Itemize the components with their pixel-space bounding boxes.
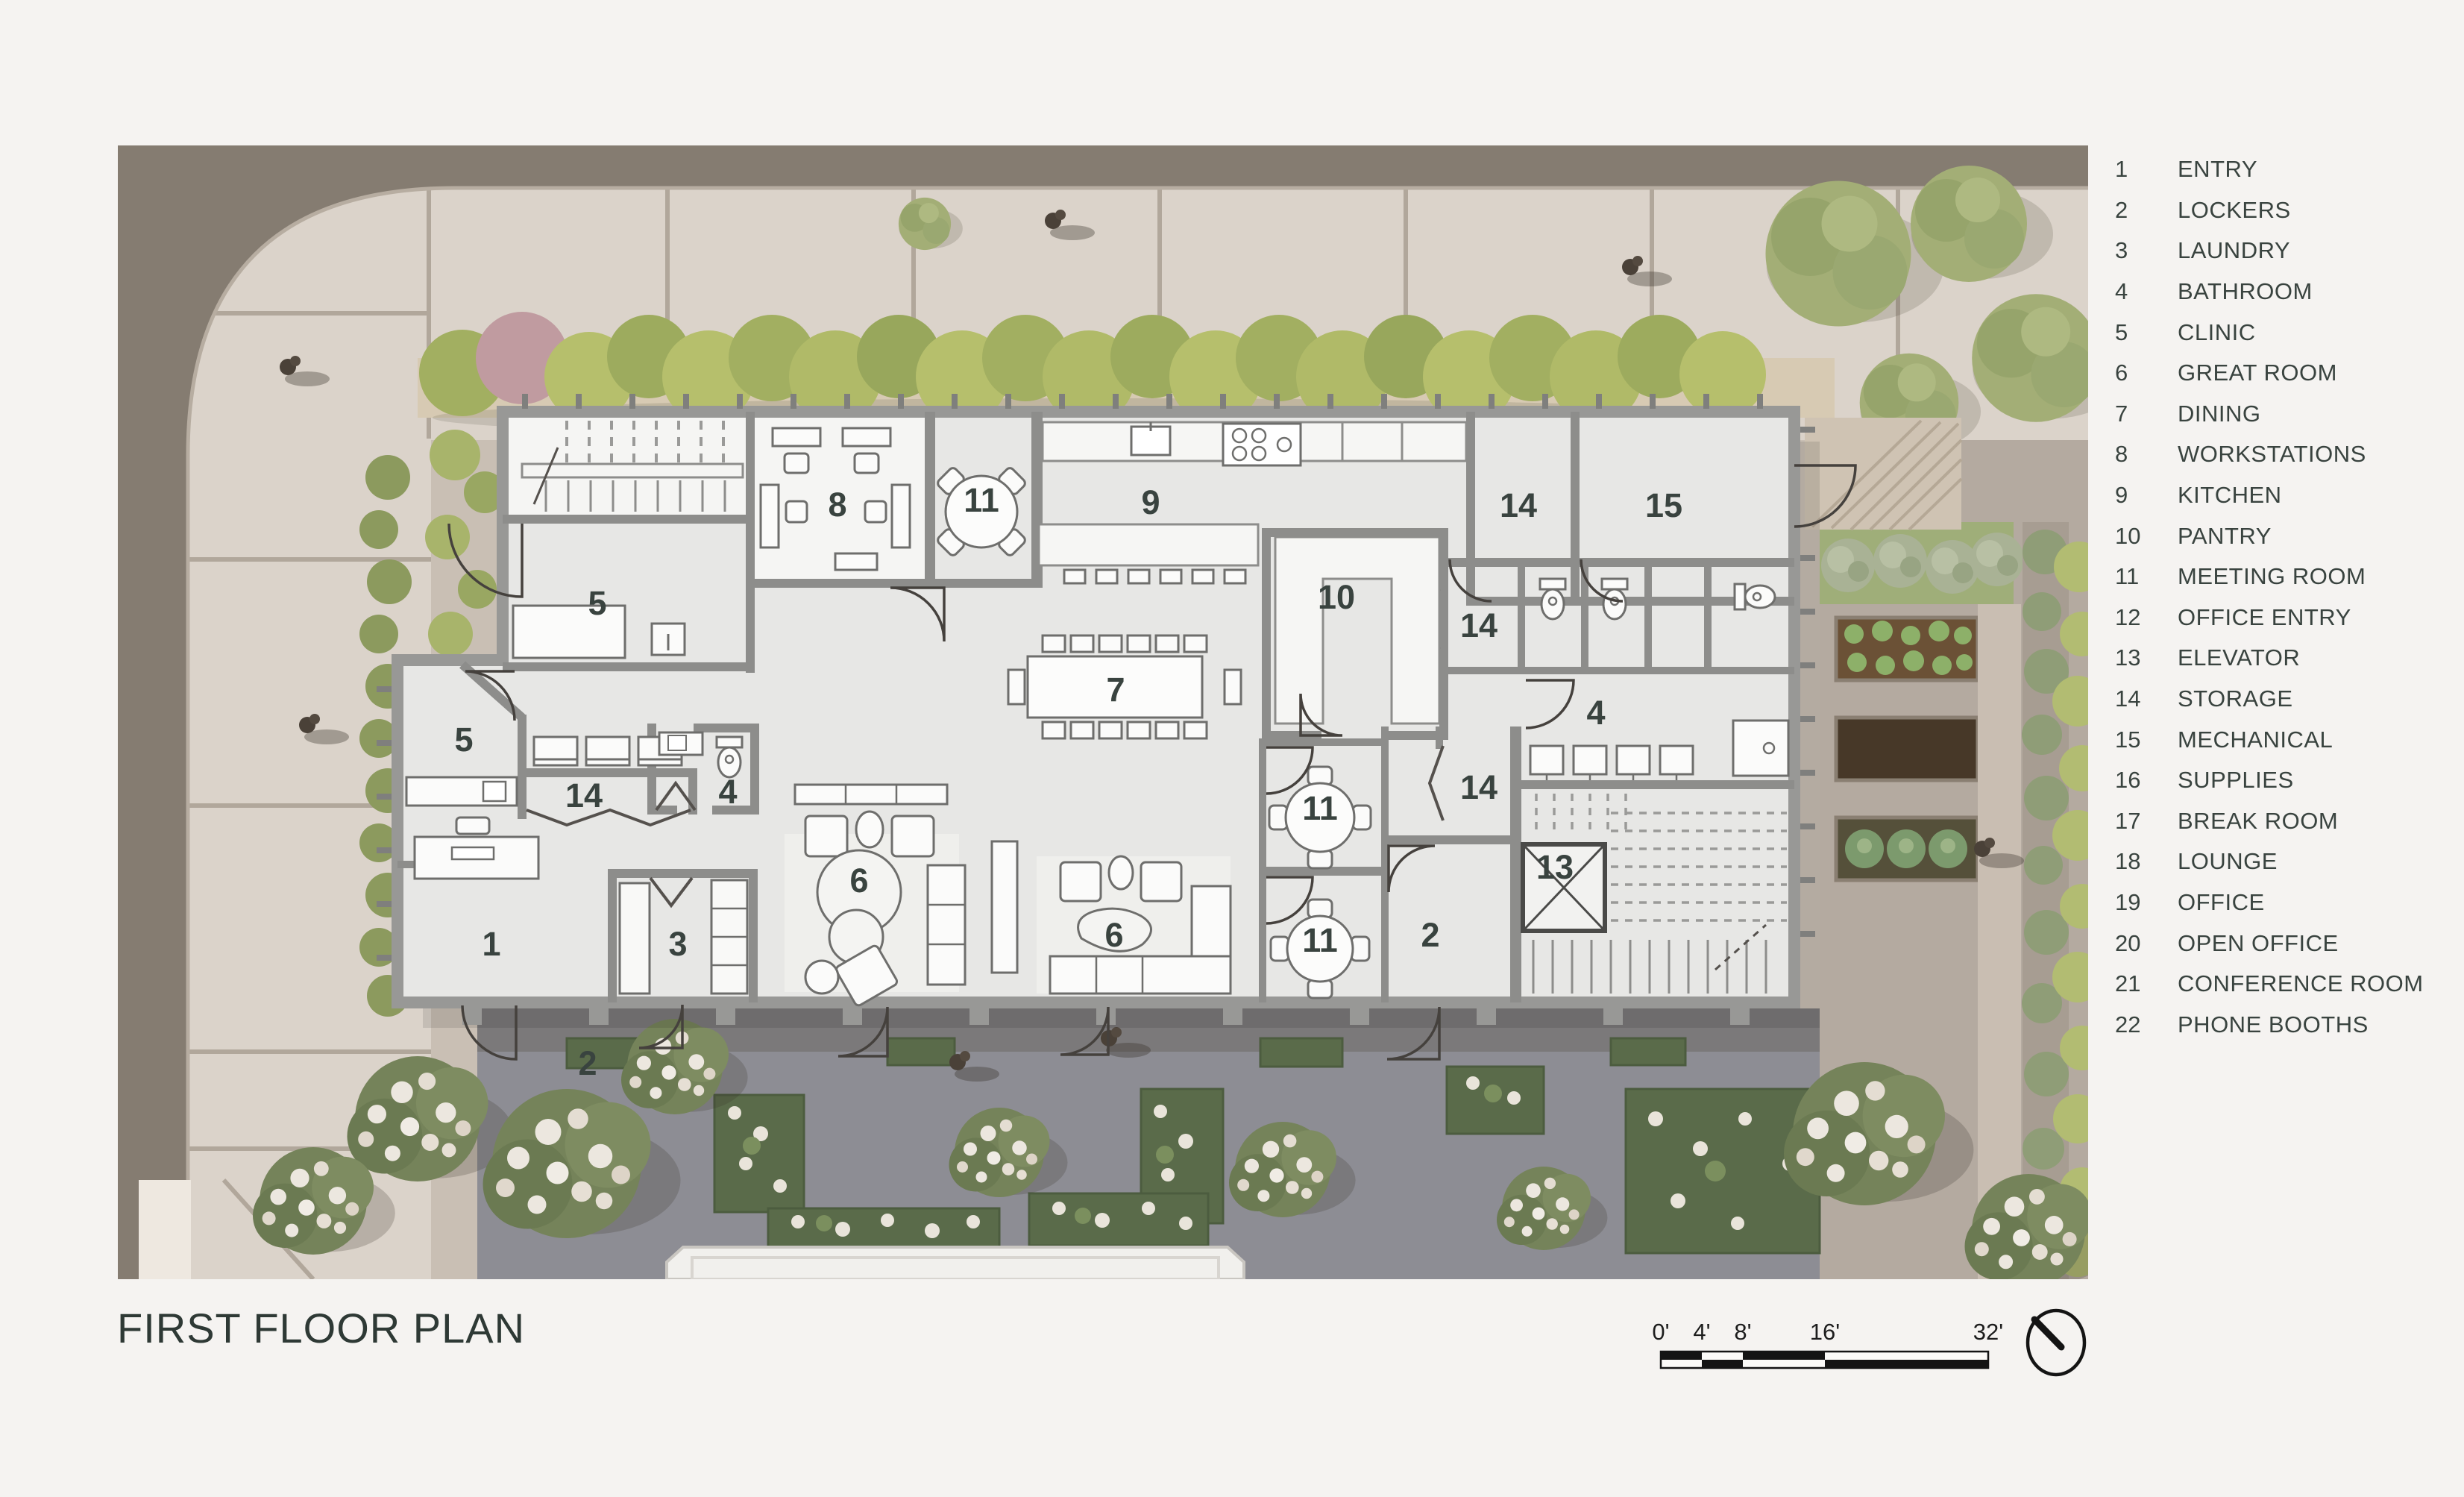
floor-plan-sheet: 811914155101474514461114613131122 0'4'8'… [0, 0, 2464, 1497]
legend-item-15: 15MECHANICAL [2115, 719, 2458, 760]
legend-item-number: 6 [2115, 360, 2178, 386]
room-label-14-7: 14 [1460, 606, 1497, 644]
legend-item-label: KITCHEN [2178, 482, 2458, 509]
legend-item-17: 17BREAK ROOM [2115, 801, 2458, 842]
room-label-6-13: 6 [849, 862, 868, 900]
legend-item-11: 11MEETING ROOM [2115, 556, 2458, 597]
legend-item-label: ENTRY [2178, 156, 2458, 183]
legend-item-label: OFFICE [2178, 889, 2458, 916]
legend-item-label: PANTRY [2178, 523, 2458, 550]
legend-item-label: BREAK ROOM [2178, 808, 2458, 835]
room-label-15-4: 15 [1645, 486, 1682, 524]
legend-item-label: MEETING ROOM [2178, 563, 2458, 590]
room-label-14-15: 14 [1460, 768, 1497, 806]
room-label-4-12: 4 [718, 773, 737, 811]
scale-tick-32': 32' [1973, 1319, 2003, 1345]
legend-item-number: 14 [2115, 685, 2178, 712]
legend-item-9: 9KITCHEN [2115, 475, 2458, 516]
legend-item-number: 22 [2115, 1011, 2178, 1038]
room-label-8-0: 8 [828, 486, 846, 524]
legend-item-16: 16SUPPLIES [2115, 760, 2458, 801]
site-plan-canvas: 811914155101474514461114613131122 0'4'8'… [0, 0, 2464, 1497]
scale-tick-8': 8' [1734, 1319, 1751, 1345]
legend-item-label: ELEVATOR [2178, 644, 2458, 671]
legend-item-10: 10PANTRY [2115, 515, 2458, 556]
page-title: FIRST FLOOR PLAN [117, 1304, 525, 1352]
legend-item-label: WORKSTATIONS [2178, 441, 2458, 468]
legend-item-number: 9 [2115, 482, 2178, 509]
legend-item-number: 21 [2115, 970, 2178, 997]
legend-item-label: LAUNDRY [2178, 237, 2458, 264]
legend-item-18: 18LOUNGE [2115, 841, 2458, 882]
room-label-9-2: 9 [1141, 483, 1160, 521]
legend-item-number: 8 [2115, 441, 2178, 468]
legend-item-number: 18 [2115, 848, 2178, 875]
legend-item-14: 14STORAGE [2115, 679, 2458, 720]
room-label-11-1: 11 [964, 481, 999, 519]
room-label-5-5: 5 [588, 584, 606, 622]
legend-item-8: 8WORKSTATIONS [2115, 434, 2458, 475]
legend-item-label: PHONE BOOTHS [2178, 1011, 2458, 1038]
scale-tick-0': 0' [1652, 1319, 1669, 1345]
legend-item-label: MECHANICAL [2178, 726, 2458, 753]
scale-bar-labels: 0'4'8'16'32' [1652, 1319, 2003, 1345]
scale-tick-4': 4' [1693, 1319, 1710, 1345]
driveway-strip [139, 1180, 191, 1279]
legend-item-19: 19OFFICE [2115, 882, 2458, 923]
room-label-11-14: 11 [1302, 789, 1338, 827]
legend-item-number: 20 [2115, 930, 2178, 957]
room-label-2-22: 2 [578, 1044, 597, 1082]
room-label-1-18: 1 [482, 925, 500, 963]
room-label-11-20: 11 [1302, 921, 1338, 959]
room-label-2-21: 2 [1421, 916, 1439, 954]
legend-item-3: 3LAUNDRY [2115, 230, 2458, 272]
legend-item-number: 11 [2115, 563, 2178, 590]
room-label-10-6: 10 [1318, 578, 1355, 616]
building: 811914155101474514461114613131122 [377, 394, 1855, 1082]
scale-tick-16': 16' [1810, 1319, 1840, 1345]
legend-item-12: 12OFFICE ENTRY [2115, 597, 2458, 638]
legend-item-number: 4 [2115, 278, 2178, 305]
legend-item-label: LOCKERS [2178, 197, 2458, 224]
legend-item-number: 17 [2115, 808, 2178, 835]
legend-item-label: GREAT ROOM [2178, 360, 2458, 386]
legend-item-22: 22PHONE BOOTHS [2115, 1004, 2458, 1045]
room-label-7-8: 7 [1106, 671, 1125, 709]
legend-item-label: STORAGE [2178, 685, 2458, 712]
legend-item-6: 6GREAT ROOM [2115, 353, 2458, 394]
legend-item-1: 1ENTRY [2115, 149, 2458, 190]
room-label-14-11: 14 [565, 776, 603, 815]
legend-item-4: 4BATHROOM [2115, 272, 2458, 313]
legend-item-label: CLINIC [2178, 319, 2458, 346]
legend-item-number: 3 [2115, 237, 2178, 264]
legend-item-label: BATHROOM [2178, 278, 2458, 305]
legend-item-2: 2LOCKERS [2115, 190, 2458, 231]
legend-item-number: 15 [2115, 726, 2178, 753]
legend-item-label: OFFICE ENTRY [2178, 604, 2458, 631]
legend-item-label: DINING [2178, 401, 2458, 427]
legend-item-20: 20OPEN OFFICE [2115, 923, 2458, 964]
legend-item-number: 2 [2115, 197, 2178, 224]
legend-item-label: CONFERENCE ROOM [2178, 970, 2458, 997]
room-legend: 1ENTRY2LOCKERS3LAUNDRY4BATHROOM5CLINIC6G… [2115, 149, 2458, 1045]
legend-item-number: 16 [2115, 767, 2178, 794]
legend-item-number: 12 [2115, 604, 2178, 631]
legend-item-label: OPEN OFFICE [2178, 930, 2458, 957]
north-arrow-icon [2028, 1311, 2084, 1375]
legend-item-number: 19 [2115, 889, 2178, 916]
legend-item-number: 5 [2115, 319, 2178, 346]
room-label-4-9: 4 [1586, 694, 1605, 732]
room-label-14-3: 14 [1500, 486, 1537, 524]
legend-item-21: 21CONFERENCE ROOM [2115, 964, 2458, 1005]
legend-item-7: 7DINING [2115, 394, 2458, 435]
entry-deck [1805, 418, 1961, 530]
room-label-6-16: 6 [1104, 916, 1123, 954]
room-label-5-10: 5 [454, 721, 473, 759]
legend-item-number: 13 [2115, 644, 2178, 671]
site-render: 811914155101474514461114613131122 [118, 145, 2128, 1287]
legend-item-label: SUPPLIES [2178, 767, 2458, 794]
legend-item-5: 5CLINIC [2115, 312, 2458, 353]
pool-pavilion [667, 1247, 1244, 1279]
clinic-lower [406, 777, 517, 806]
scale-bar: 0'4'8'16'32' [1652, 1319, 2003, 1368]
legend-item-13: 13ELEVATOR [2115, 638, 2458, 679]
room-label-13-17: 13 [1536, 848, 1574, 886]
legend-item-number: 10 [2115, 523, 2178, 550]
legend-item-number: 1 [2115, 156, 2178, 183]
legend-item-number: 7 [2115, 401, 2178, 427]
legend-item-label: LOUNGE [2178, 848, 2458, 875]
room-label-3-19: 3 [668, 925, 687, 963]
